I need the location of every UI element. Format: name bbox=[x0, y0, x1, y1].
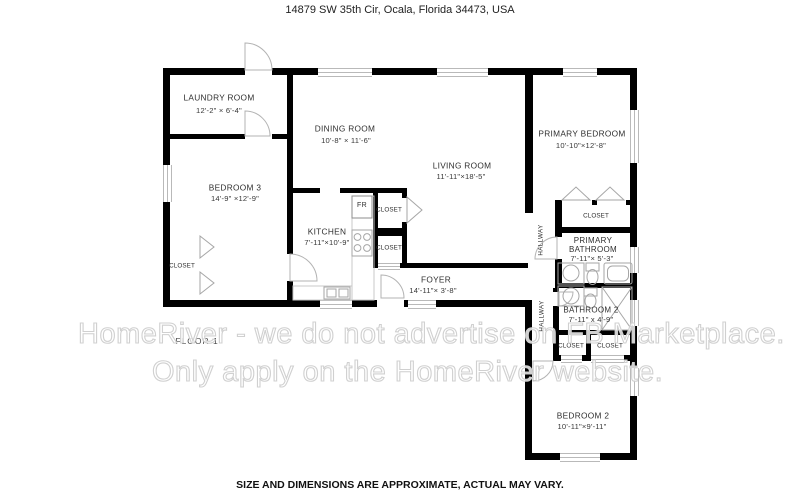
room-dims-bedroom3: 14'-9" ×12'-9" bbox=[211, 195, 259, 203]
room-dims-living: 11'-11"×18'-5" bbox=[436, 173, 485, 181]
room-label-bedroom2: BEDROOM 2 bbox=[557, 411, 610, 420]
bath2-toilet-tank bbox=[584, 288, 597, 296]
room-label-dining: DINING ROOM bbox=[315, 124, 375, 133]
hallway-label-upper: HALLWAY bbox=[539, 224, 546, 255]
bifold-doors bbox=[200, 187, 624, 294]
primary-tub-inner bbox=[608, 266, 629, 281]
room-label-foyer: FOYER bbox=[421, 275, 451, 284]
room-dims-kitchen: 7'-11"×10'-9" bbox=[304, 239, 349, 247]
kitchen-fixtures bbox=[293, 196, 374, 300]
bifold-bedroom3-closet-1 bbox=[200, 236, 214, 258]
address-title: 14879 SW 35th Cir, Ocala, Florida 34473,… bbox=[285, 4, 514, 16]
watermark-line-1: HomeRiver - we do not advertise on FB Ma… bbox=[78, 318, 785, 351]
door-arc-bedroom3 bbox=[290, 254, 317, 281]
room-dims-bedroom2: 10'-11"×9'-11" bbox=[557, 423, 606, 431]
room-label-primary-bedroom: PRIMARY BEDROOM bbox=[538, 129, 625, 138]
burner bbox=[364, 234, 371, 241]
closet-label-primary: CLOSET bbox=[583, 214, 609, 221]
primary-sink bbox=[563, 265, 579, 281]
kitchen-bottom-counter bbox=[293, 286, 352, 300]
room-dims-primary-bedroom: 10'-10"×12'-8" bbox=[556, 142, 606, 150]
closet-label-living-2: CLOSET bbox=[376, 246, 402, 253]
primary-toilet-bowl bbox=[587, 270, 598, 285]
room-label-bedroom3: BEDROOM 3 bbox=[209, 183, 262, 192]
room-label-laundry: LAUNDRY ROOM bbox=[183, 93, 254, 102]
door-arc-laundry-interior bbox=[245, 111, 270, 136]
room-label-living: LIVING ROOM bbox=[433, 161, 492, 170]
bifold-bedroom3-closet-2 bbox=[200, 272, 214, 294]
room-dims-primary-bathroom: 7'-11"× 5'-3" bbox=[570, 255, 613, 263]
burner bbox=[354, 234, 361, 241]
room-dims-foyer: 14'-11"× 3'-8" bbox=[409, 287, 456, 295]
closet-label-bedroom3: CLOSET bbox=[169, 264, 195, 271]
kitchen-sink-basin bbox=[327, 289, 336, 297]
bifold-primary-closet-1 bbox=[562, 187, 590, 200]
burner bbox=[354, 245, 361, 252]
closet-label-living-1: CLOSET bbox=[376, 208, 402, 215]
burner bbox=[364, 245, 371, 252]
room-dims-dining: 10'-8" × 11'-6" bbox=[321, 137, 371, 145]
room-label-kitchen: KITCHEN bbox=[308, 227, 347, 236]
door-arc-front-entry bbox=[381, 275, 404, 298]
watermark-line-2: Only apply on the HomeRiver website. bbox=[152, 356, 663, 389]
fridge-label: FR bbox=[357, 202, 367, 210]
door-arc-laundry-entry bbox=[245, 43, 272, 70]
disclaimer-text: SIZE AND DIMENSIONS ARE APPROXIMATE, ACT… bbox=[236, 479, 564, 491]
room-dims-laundry: 12'-2" × 6'-4" bbox=[196, 107, 242, 115]
room-label-primary-bathroom: PRIMARY BATHROOM bbox=[563, 237, 623, 255]
bifold-living-closet bbox=[407, 197, 422, 223]
kitchen-sink-basin bbox=[339, 289, 348, 297]
floor-plan-page: 14879 SW 35th Cir, Ocala, Florida 34473,… bbox=[0, 0, 800, 499]
bifold-primary-closet-2 bbox=[596, 187, 624, 200]
